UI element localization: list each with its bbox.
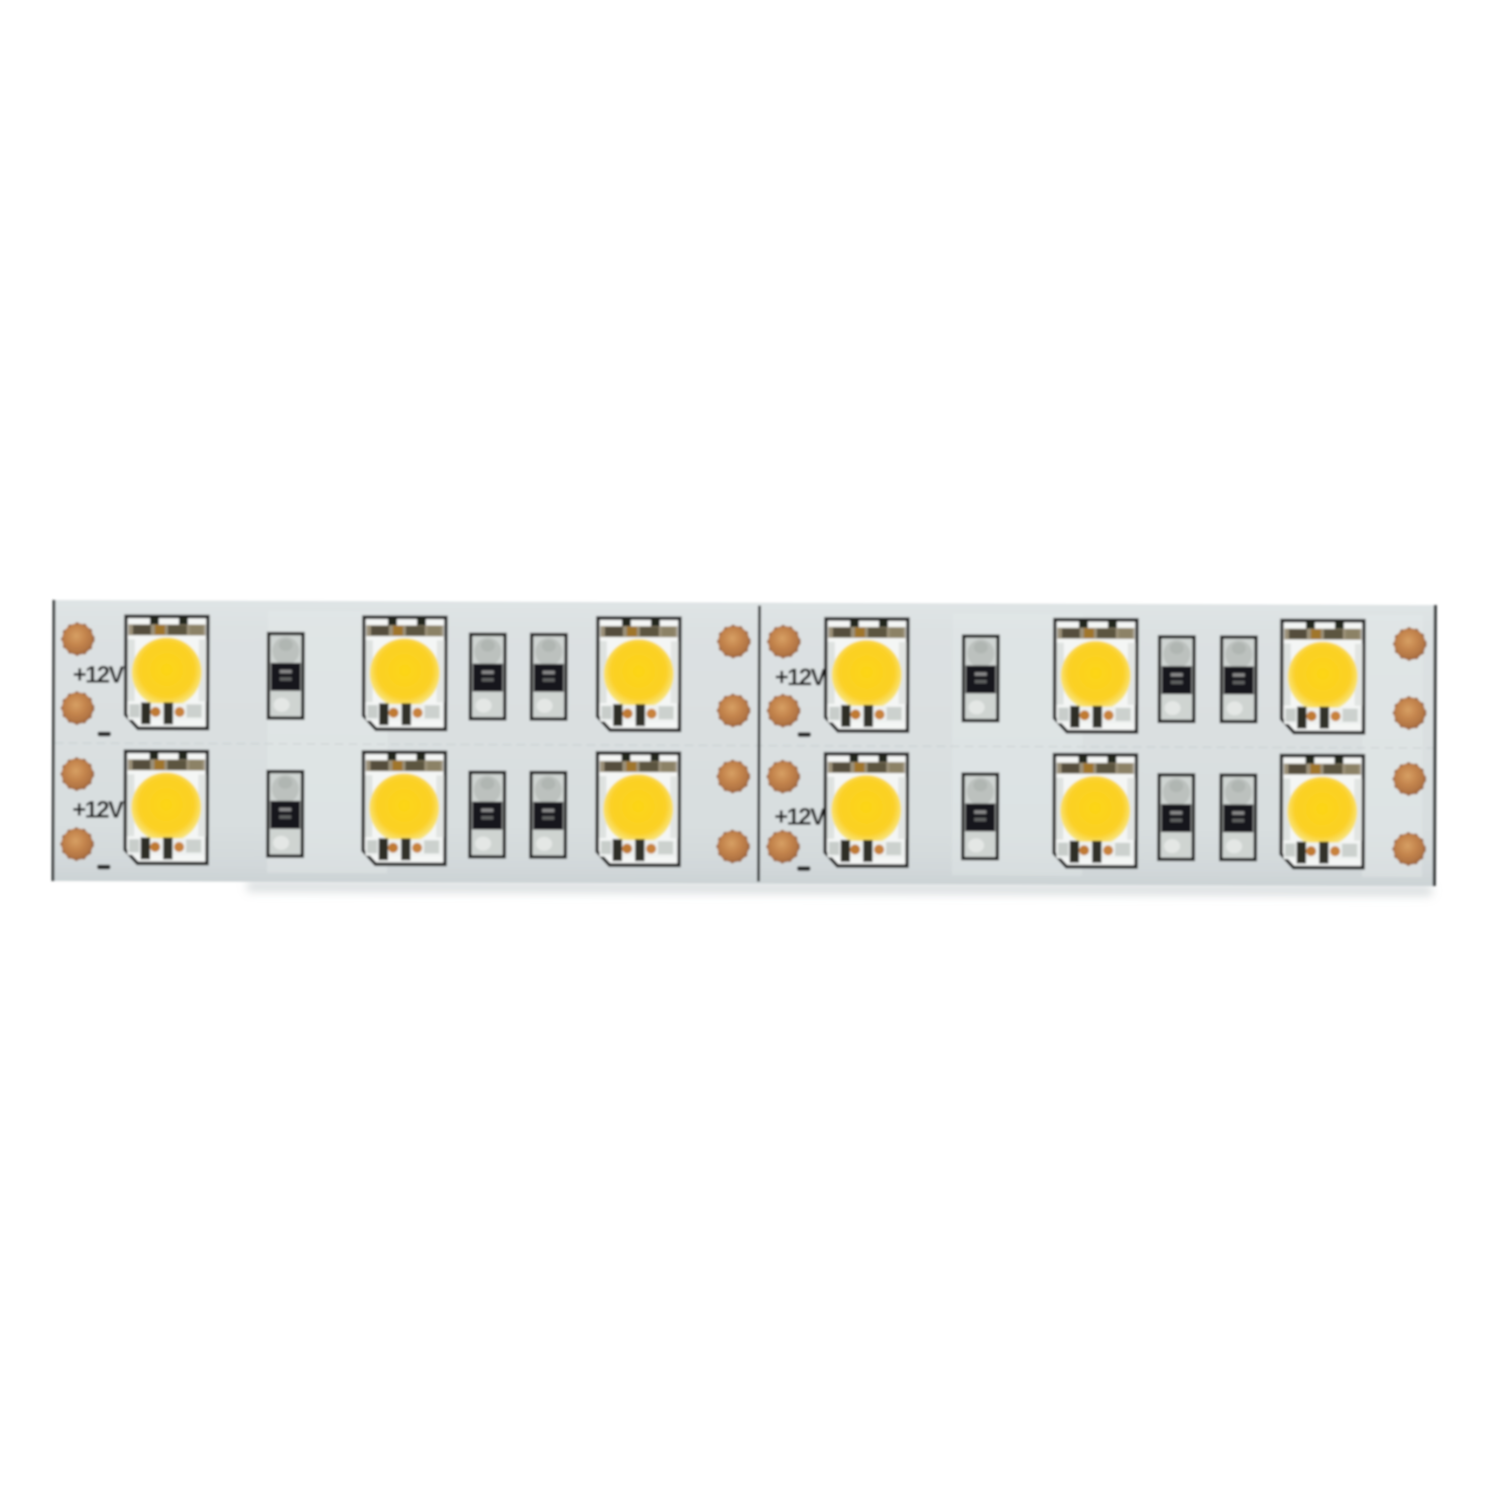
- svg-text:+12V: +12V: [72, 797, 124, 824]
- svg-text:+12V: +12V: [775, 664, 827, 691]
- svg-text:+12V: +12V: [774, 804, 826, 831]
- svg-text:+12V: +12V: [73, 662, 125, 689]
